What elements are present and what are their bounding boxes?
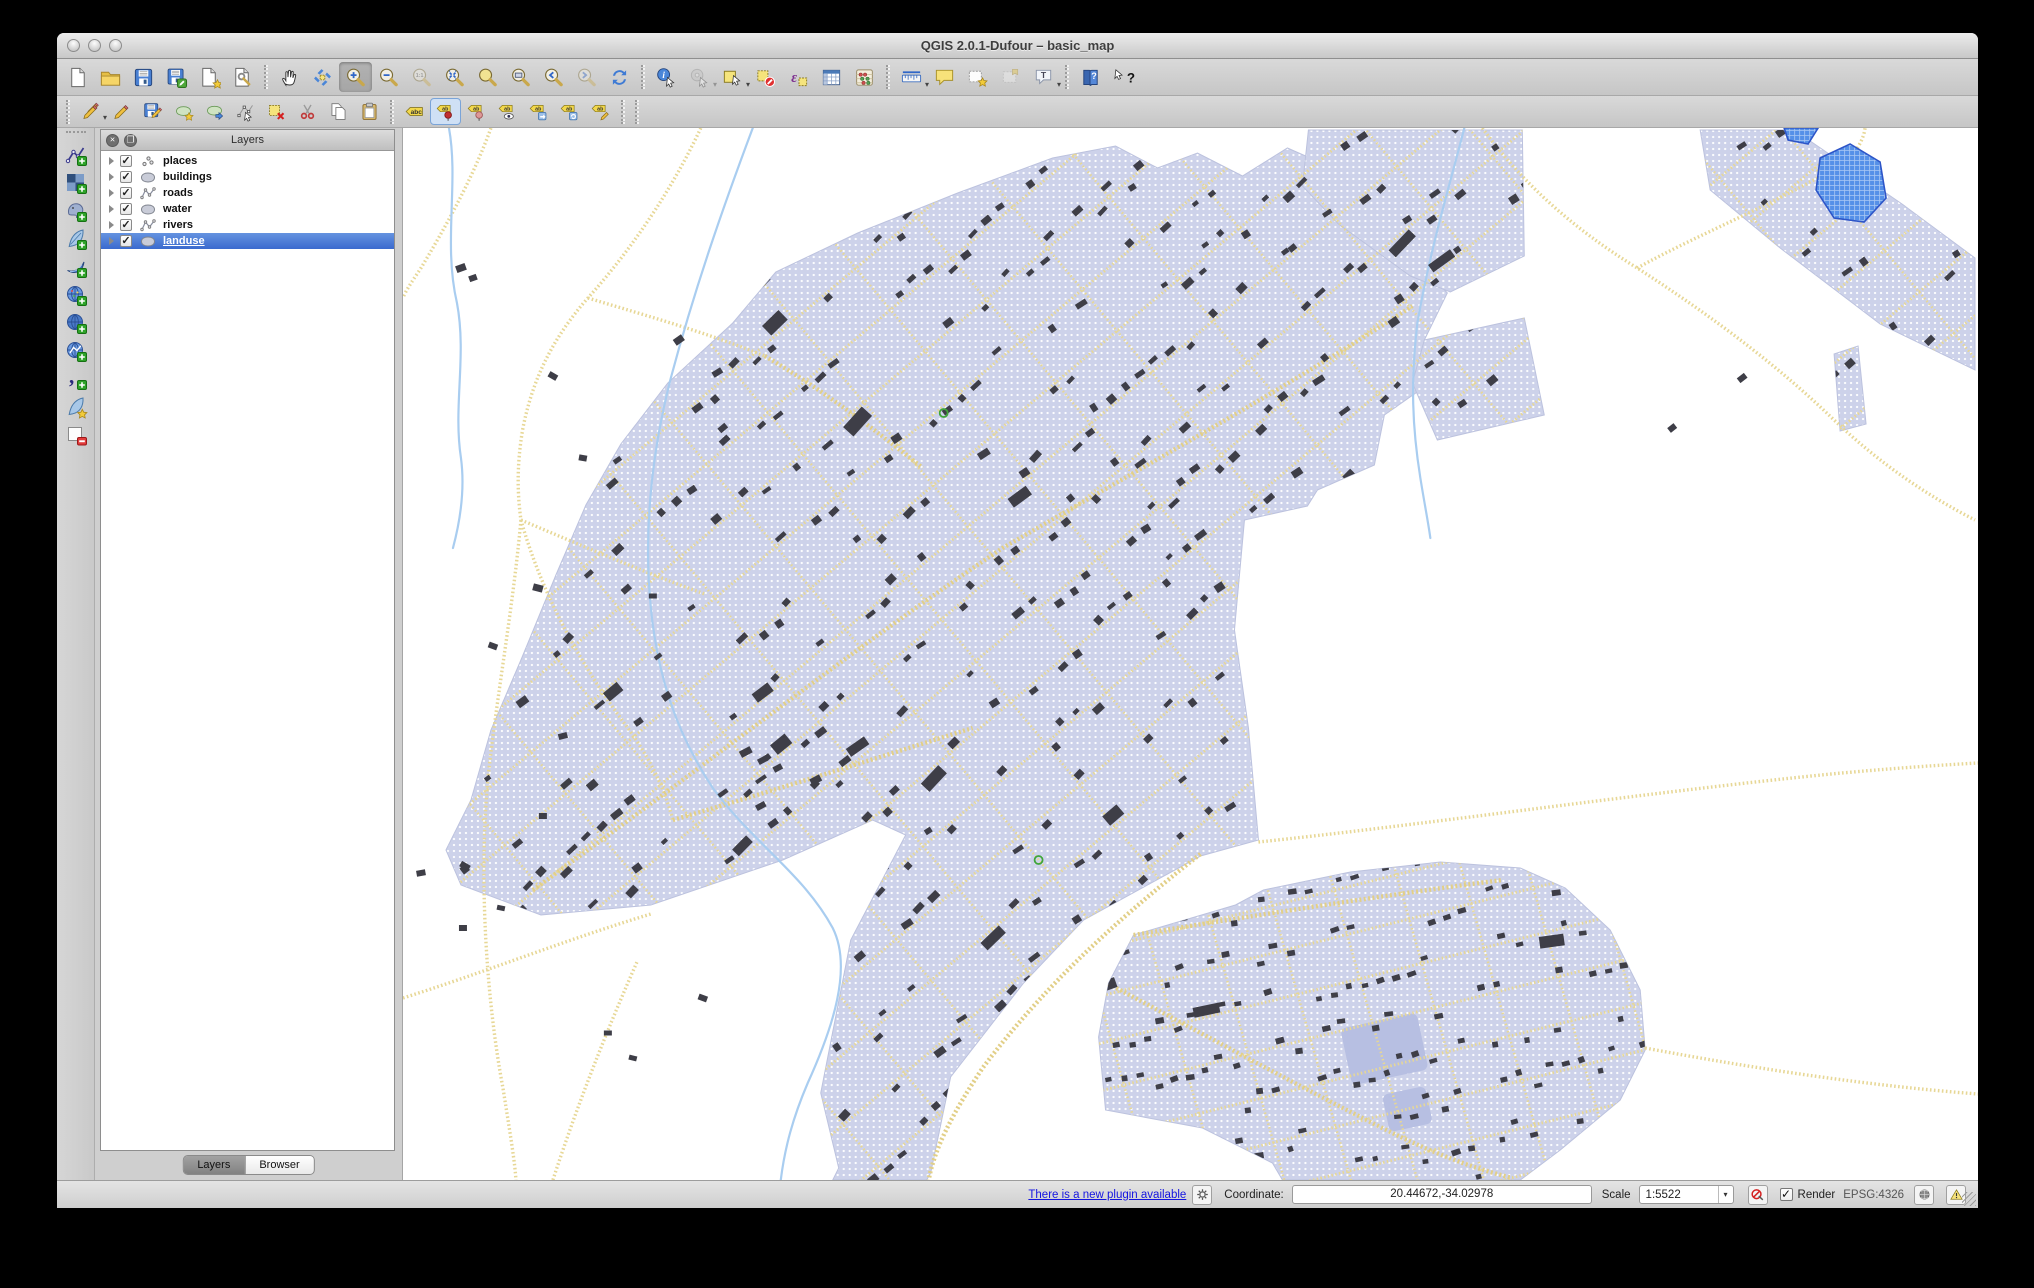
toolbar-separator — [635, 100, 639, 124]
add-spatialite-layer-button[interactable] — [60, 225, 91, 253]
status-bar: There is a new plugin available Coordina… — [57, 1180, 1978, 1208]
layer-type-icon — [140, 170, 158, 184]
coordinate-input[interactable]: 20.44672,-34.02978 — [1292, 1185, 1592, 1204]
show-hide-labels-button[interactable]: ab — [492, 98, 523, 125]
add-wcs-layer-button[interactable] — [60, 309, 91, 337]
map-tips-button[interactable] — [928, 62, 961, 92]
plugin-manager-icon[interactable] — [1192, 1185, 1212, 1205]
remove-layer-button[interactable] — [60, 421, 91, 449]
new-project-button[interactable] — [61, 62, 94, 92]
layer-visibility-checkbox[interactable]: ✓ — [120, 219, 132, 231]
scale-combobox[interactable]: 1:5522 ▾ — [1639, 1185, 1734, 1204]
composer-manager-button[interactable] — [226, 62, 259, 92]
panel-title: Layers — [101, 134, 394, 146]
layer-type-icon — [140, 186, 158, 200]
toolbar-digitizing-labeling: ▾abcabababababab — [57, 96, 1978, 128]
add-vector-layer-button[interactable] — [60, 141, 91, 169]
new-bookmark-button[interactable] — [961, 62, 994, 92]
open-attribute-table-button[interactable] — [815, 62, 848, 92]
cut-features-button[interactable] — [292, 98, 323, 125]
refresh-map-button[interactable] — [603, 62, 636, 92]
new-spatialite-layer-button[interactable] — [60, 393, 91, 421]
dock-tab-browser[interactable]: Browser — [245, 1156, 313, 1174]
svg-text:ab: ab — [566, 106, 572, 112]
svg-text:T: T — [1041, 69, 1047, 79]
zoom-button[interactable] — [109, 39, 122, 52]
expand-icon[interactable] — [109, 189, 114, 197]
dock-tab-layers[interactable]: Layers — [183, 1156, 245, 1174]
crs-status: EPSG:4326 — [1843, 1189, 1904, 1201]
add-delimited-text-layer-button[interactable]: , — [60, 365, 91, 393]
move-label-button[interactable]: ab — [523, 98, 554, 125]
svg-text:abc: abc — [411, 109, 423, 116]
whats-this-button[interactable]: ? — [1107, 62, 1140, 92]
close-button[interactable] — [67, 39, 80, 52]
qgis-window: QGIS 2.0.1-Dufour – basic_map 1:1i▾▾ε▾T▾… — [57, 33, 1978, 1208]
expand-icon[interactable] — [109, 157, 114, 165]
add-wfs-layer-button[interactable] — [60, 337, 91, 365]
layer-type-icon — [140, 234, 158, 248]
layer-item-water[interactable]: ✓ water — [101, 201, 394, 217]
map-canvas[interactable] — [402, 128, 1978, 1180]
select-features-button[interactable]: ▾ — [716, 62, 749, 92]
paste-features-button[interactable] — [354, 98, 385, 125]
layer-name: buildings — [163, 171, 212, 183]
layer-name: landuse — [163, 235, 205, 247]
save-project-as-button[interactable] — [160, 62, 193, 92]
move-feature-button[interactable] — [199, 98, 230, 125]
measure-line-button[interactable]: ▾ — [895, 62, 928, 92]
deselect-features-button[interactable] — [749, 62, 782, 92]
toolbar-drag-handle[interactable] — [66, 131, 86, 136]
run-feature-action-button[interactable]: ▾ — [683, 62, 716, 92]
node-tool-button[interactable] — [230, 98, 261, 125]
layer-labeling-options-button[interactable]: abc — [399, 98, 430, 125]
toolbar-separator — [264, 65, 268, 89]
add-raster-layer-button[interactable] — [60, 169, 91, 197]
delete-selected-button[interactable] — [261, 98, 292, 125]
layers-panel: × ❐ Layers ✓ places ✓ buildings ✓ roads … — [100, 129, 395, 1151]
identify-features-button[interactable]: i — [650, 62, 683, 92]
zoom-next-button[interactable] — [570, 62, 603, 92]
layer-visibility-checkbox[interactable]: ✓ — [120, 235, 132, 247]
scale-dropdown-icon[interactable]: ▾ — [1718, 1186, 1733, 1203]
layer-name: rivers — [163, 219, 193, 231]
layer-visibility-checkbox[interactable]: ✓ — [120, 171, 132, 183]
layer-type-icon — [140, 202, 158, 216]
layer-item-places[interactable]: ✓ places — [101, 153, 394, 169]
layer-item-roads[interactable]: ✓ roads — [101, 185, 394, 201]
save-project-button[interactable] — [127, 62, 160, 92]
render-label: Render — [1798, 1189, 1836, 1201]
crs-status-icon[interactable] — [1914, 1185, 1934, 1205]
layer-name: roads — [163, 187, 193, 199]
zoom-to-layer-button[interactable] — [504, 62, 537, 92]
current-edits-button[interactable]: ▾ — [75, 98, 106, 125]
svg-text:1:1: 1:1 — [416, 73, 424, 79]
expand-icon[interactable] — [109, 221, 114, 229]
highlight-pinned-labels-button[interactable]: ab — [461, 98, 492, 125]
add-feature-button[interactable] — [168, 98, 199, 125]
change-label-properties-button[interactable]: ab — [585, 98, 616, 125]
help-contents-button[interactable]: ? — [1074, 62, 1107, 92]
svg-text:ab: ab — [597, 106, 603, 112]
layer-name: places — [163, 155, 197, 167]
text-annotation-button[interactable]: T▾ — [1027, 62, 1060, 92]
layers-dock: × ❐ Layers ✓ places ✓ buildings ✓ roads … — [95, 128, 402, 1180]
svg-text:?: ? — [1091, 71, 1097, 81]
zoom-last-button[interactable] — [537, 62, 570, 92]
pin-unpin-labels-button[interactable]: ab — [430, 98, 461, 125]
window-title: QGIS 2.0.1-Dufour – basic_map — [57, 38, 1978, 53]
dropdown-arrow-icon[interactable]: ▾ — [1057, 81, 1061, 89]
toolbar-main: 1:1i▾▾ε▾T▾?? — [57, 59, 1978, 96]
layer-name: water — [163, 203, 192, 215]
expand-icon[interactable] — [109, 237, 114, 245]
add-mssql-layer-button[interactable] — [60, 253, 91, 281]
toolbar-separator — [641, 65, 645, 89]
toolbar-separator — [390, 100, 394, 124]
coordinate-label: Coordinate: — [1224, 1189, 1283, 1201]
rotate-label-button[interactable]: ab — [554, 98, 585, 125]
plugin-available-link[interactable]: There is a new plugin available — [1028, 1189, 1186, 1201]
scale-value: 1:5522 — [1640, 1189, 1718, 1201]
layer-tree: ✓ places ✓ buildings ✓ roads ✓ water ✓ r… — [101, 151, 394, 1150]
expand-icon[interactable] — [109, 173, 114, 181]
toolbar-separator — [1065, 65, 1069, 89]
open-project-button[interactable] — [94, 62, 127, 92]
svg-text:ε: ε — [791, 69, 797, 85]
copy-features-button[interactable] — [323, 98, 354, 125]
layer-visibility-checkbox[interactable]: ✓ — [120, 187, 132, 199]
layer-type-icon — [140, 218, 158, 232]
manage-layers-toolbar: , — [57, 128, 95, 1180]
new-composer-button[interactable] — [193, 62, 226, 92]
map-render — [403, 128, 1978, 1180]
layer-item-landuse[interactable]: ✓ landuse — [101, 233, 394, 249]
zoom-out-button[interactable] — [372, 62, 405, 92]
dock-tab-bar: LayersBrowser — [182, 1155, 314, 1175]
field-calculator-button[interactable] — [848, 62, 881, 92]
layer-type-icon — [140, 154, 158, 168]
title-bar[interactable]: QGIS 2.0.1-Dufour – basic_map — [57, 33, 1978, 59]
pan-to-selection-button[interactable] — [306, 62, 339, 92]
toolbar-separator — [886, 65, 890, 89]
render-checkbox[interactable]: ✓ — [1780, 1188, 1793, 1201]
layer-item-rivers[interactable]: ✓ rivers — [101, 217, 394, 233]
layers-panel-header[interactable]: × ❐ Layers — [101, 130, 394, 151]
show-bookmarks-button[interactable] — [994, 62, 1027, 92]
svg-text:,: , — [69, 367, 74, 388]
layer-visibility-checkbox[interactable]: ✓ — [120, 155, 132, 167]
toolbar-separator — [66, 100, 70, 124]
add-wms-layer-button[interactable] — [60, 281, 91, 309]
expand-icon[interactable] — [109, 205, 114, 213]
layer-item-buildings[interactable]: ✓ buildings — [101, 169, 394, 185]
svg-text:ab: ab — [504, 106, 510, 112]
window-controls — [67, 39, 122, 52]
svg-text:ab: ab — [535, 106, 541, 112]
add-postgis-layer-button[interactable] — [60, 197, 91, 225]
save-layer-edits-button[interactable] — [137, 98, 168, 125]
select-by-expression-button[interactable]: ε — [782, 62, 815, 92]
layer-visibility-checkbox[interactable]: ✓ — [120, 203, 132, 215]
zoom-to-selection-button[interactable] — [471, 62, 504, 92]
toggle-editing-button[interactable] — [106, 98, 137, 125]
zoom-full-extent-button[interactable] — [438, 62, 471, 92]
zoom-in-button[interactable] — [339, 62, 372, 92]
pan-map-button[interactable] — [273, 62, 306, 92]
zoom-actual-size-button[interactable]: 1:1 — [405, 62, 438, 92]
resize-grip[interactable] — [1962, 1192, 1976, 1206]
stop-render-icon[interactable] — [1748, 1185, 1768, 1205]
toolbar-separator — [621, 100, 625, 124]
scale-label: Scale — [1602, 1189, 1631, 1201]
minimize-button[interactable] — [88, 39, 101, 52]
svg-text:?: ? — [1127, 70, 1135, 85]
